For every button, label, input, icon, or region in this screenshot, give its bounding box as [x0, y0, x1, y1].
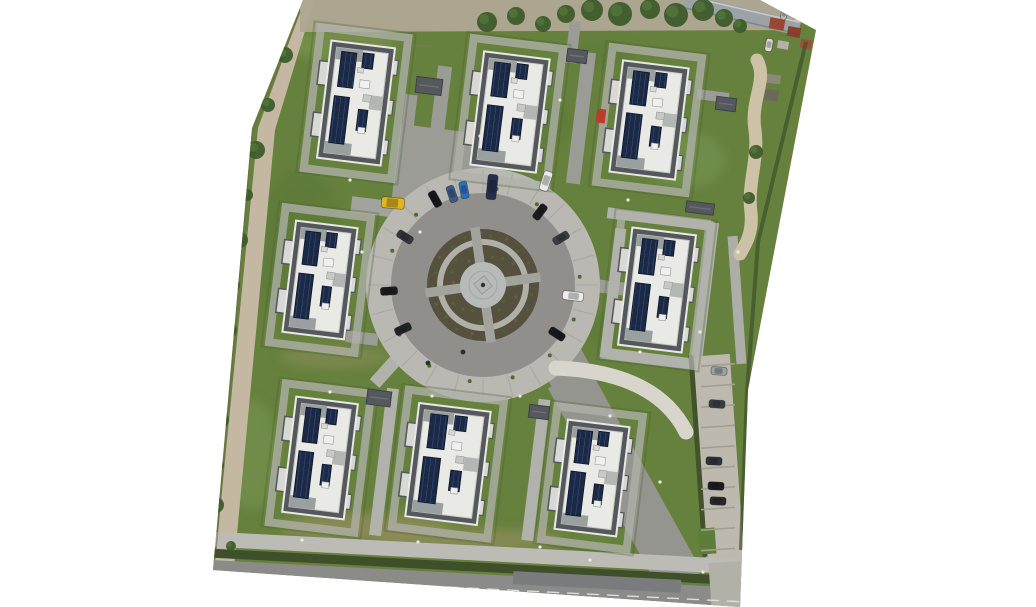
street-furniture-dot [461, 350, 466, 355]
solar-panel-array [454, 416, 468, 432]
ground-marker-dot [701, 570, 704, 573]
solar-panel-array [427, 414, 448, 450]
car [711, 366, 728, 375]
street-furniture-dot [426, 361, 431, 366]
solar-panel-array [663, 240, 676, 257]
solar-panel-array [325, 409, 337, 425]
aerial-orthophoto-svg [0, 0, 1036, 607]
car [709, 399, 726, 408]
site [180, 0, 840, 607]
ground-marker-dot [538, 545, 541, 548]
ground-marker-dot [348, 178, 351, 181]
ground-marker-dot [371, 143, 374, 146]
car [380, 286, 398, 295]
solar-panel-array [362, 53, 375, 70]
ground-marker-dot [658, 480, 661, 483]
ground-marker-dot [736, 250, 739, 253]
car [486, 174, 499, 200]
ground-marker-dot [430, 394, 433, 397]
ground-marker-dot [416, 540, 419, 543]
ground-marker-dot [518, 394, 521, 397]
ground-marker-dot [626, 198, 629, 201]
ground-marker-dot [360, 250, 363, 253]
car [706, 457, 722, 466]
solar-panel-array [654, 72, 667, 88]
ground-marker-dot [588, 558, 591, 561]
ground-marker-dot [300, 538, 303, 541]
solar-panel-array [515, 64, 528, 80]
ground-marker-dot [558, 98, 561, 101]
ground-marker-dot [418, 230, 421, 233]
ground-marker-dot [608, 414, 611, 417]
ground-marker-dot [638, 350, 641, 353]
ground-marker-dot [478, 134, 481, 137]
solar-panel-array [325, 232, 337, 248]
car [381, 197, 405, 210]
aerial-orthophoto [0, 0, 1036, 607]
solar-panel-array [597, 431, 609, 446]
car [708, 482, 724, 491]
red-awning [596, 109, 607, 124]
ground-marker-dot [328, 390, 331, 393]
ground-marker-dot [698, 330, 701, 333]
car [710, 497, 726, 506]
